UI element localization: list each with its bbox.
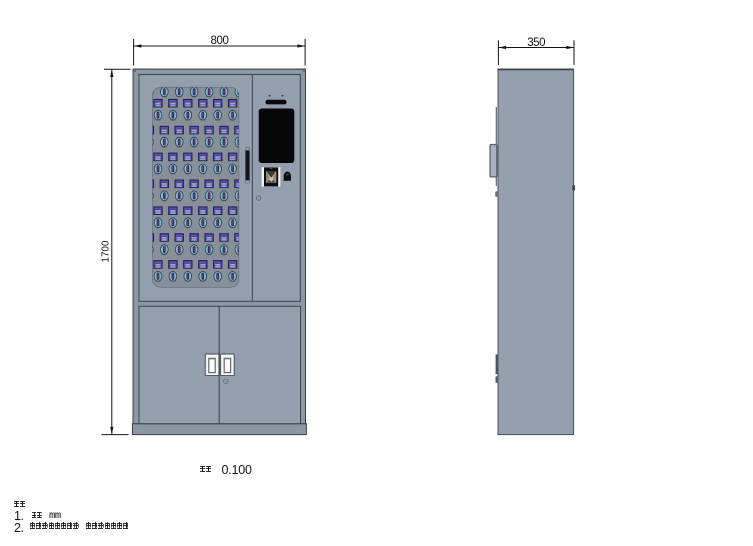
svg-text:350: 350 <box>527 37 545 49</box>
svg-text:1700: 1700 <box>101 240 112 263</box>
svg-text:800: 800 <box>211 35 229 47</box>
